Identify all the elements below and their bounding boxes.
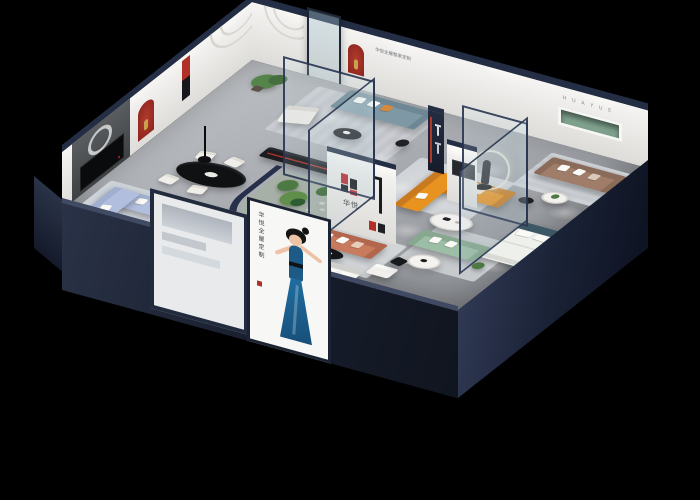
red-black-strip-art xyxy=(182,55,190,101)
tv-standby-light xyxy=(118,155,120,159)
wall-slogan: 华悦全屋整家定制 xyxy=(370,46,416,65)
niche-figurine xyxy=(354,59,358,70)
red-arch-niche-left xyxy=(138,95,154,142)
pendant-lamp xyxy=(204,126,206,158)
poster-red-seal xyxy=(257,280,262,286)
pendant-lamp-shade xyxy=(198,156,211,163)
brand-poster: 华悦全屋定制 xyxy=(247,197,331,364)
niche-figurine xyxy=(144,118,148,131)
mini-art-red xyxy=(369,220,376,231)
bathroom-glass-column xyxy=(428,110,444,174)
poster-vertical-text: 华悦全屋定制 xyxy=(256,210,265,260)
west-wall-wedge xyxy=(34,176,64,273)
red-arch-niche-right xyxy=(348,42,364,76)
showroom-render: 华悦全屋整家定制 H U A Y U E xyxy=(0,0,700,500)
poster-woman-figure xyxy=(274,223,324,353)
display-screen-panel xyxy=(150,188,248,335)
hook-art-strip xyxy=(379,177,382,214)
mini-art-black xyxy=(378,223,385,234)
wall-arc-decor-right xyxy=(258,4,304,51)
